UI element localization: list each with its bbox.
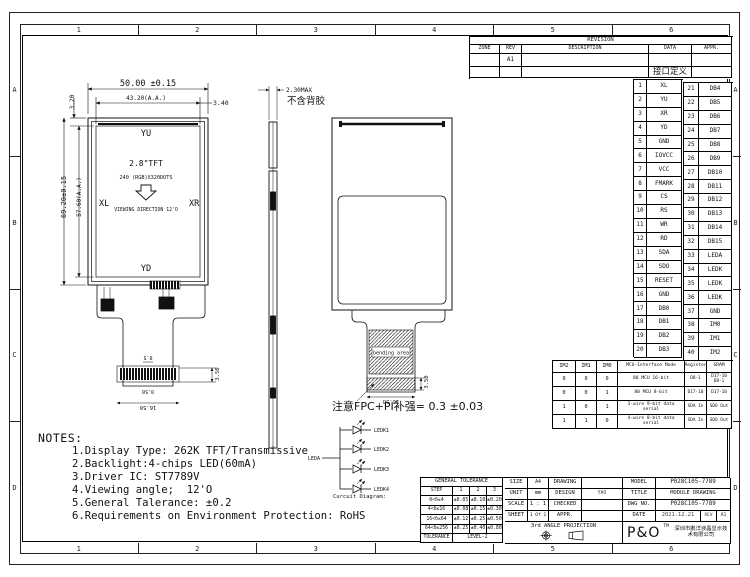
dim-thickness: 2.30MAX bbox=[286, 87, 312, 94]
unit-label: UNIT bbox=[505, 489, 528, 500]
tolerance-col: 1 bbox=[453, 487, 470, 496]
notes-section: NOTES: 1.Display Type: 262K TFT/Transmis… bbox=[38, 431, 365, 523]
note-item: 1.Display Type: 262K TFT/Transmissive bbox=[72, 445, 365, 458]
sheet-label: SHEET bbox=[505, 511, 528, 522]
tolerance-v2: ±0.40 bbox=[470, 525, 487, 535]
revision-col-data: DATA bbox=[649, 45, 692, 54]
dim-width: 50.00 ±0.15 bbox=[120, 79, 176, 89]
tolerance-v2: ±0.10 bbox=[470, 496, 487, 506]
mcu-mode: 4-wire 8-bit data serial bbox=[618, 415, 685, 429]
pin-name: DB7 bbox=[699, 125, 732, 139]
tolerance-v3: ±0.20 bbox=[487, 496, 503, 506]
pin-table-right: 21 DB4 22 DB5 23 DB6 24 DB7 25 DB8 26 DB… bbox=[683, 82, 733, 360]
logo-tm: TM bbox=[663, 525, 668, 530]
design-label: DESIGN bbox=[549, 489, 582, 500]
resolution-text: 240 (RGB)X320DOTS bbox=[119, 175, 172, 181]
mcu-im1: 0 bbox=[576, 387, 597, 401]
pin-name: IM2 bbox=[699, 347, 732, 361]
mcu-im2: 1 bbox=[553, 415, 576, 429]
mcu-gram: D17-10 D8-1 bbox=[707, 373, 732, 387]
mcu-register: D17-10 bbox=[685, 387, 707, 401]
pin-name: DB1 bbox=[647, 316, 682, 330]
tolerance-v3: ±0.80 bbox=[487, 525, 503, 535]
pin-table-left: 1 XL 2 YU 3 XR 4 YD 5 GND 6 IOVCC 7 VCC … bbox=[633, 79, 683, 357]
pin-number: 26 bbox=[684, 152, 699, 166]
pin-name: DB9 bbox=[699, 152, 732, 166]
mcu-im0: 0 bbox=[597, 373, 618, 387]
pin-name: YD bbox=[647, 122, 682, 136]
scale-label: SCALE bbox=[505, 500, 528, 511]
pin-name: YU bbox=[647, 94, 682, 108]
pin-name: XR bbox=[647, 108, 682, 122]
note-item: 2.Backlight:4-chips LED(60mA) bbox=[72, 458, 365, 471]
company-logo: P&O TM 深圳市鹏洋液晶显示技术有限公司 bbox=[623, 522, 731, 544]
revision-data-value: 接口定义 bbox=[649, 67, 692, 78]
label-yu: YU bbox=[141, 129, 151, 139]
title-value: MODULE DRAWING bbox=[656, 489, 731, 500]
mcu-im0: 0 bbox=[597, 415, 618, 429]
mcu-header: IM0 bbox=[597, 361, 618, 373]
dim-aa-height: 57.60(A.A.) bbox=[76, 177, 83, 217]
date-label: DATE bbox=[623, 511, 656, 522]
pin-name: GND bbox=[699, 305, 732, 319]
fpc-width-dim: 16.50 bbox=[140, 404, 157, 410]
tolerance-v1: ±0.08 bbox=[453, 506, 470, 516]
pin-name: LEDK bbox=[699, 264, 732, 278]
mcu-im0: 1 bbox=[597, 401, 618, 415]
logo-text: P&O bbox=[627, 526, 660, 540]
scale-value: 1 : 1 bbox=[528, 500, 549, 511]
size-label: SIZE bbox=[505, 478, 528, 489]
back-stiffener-outline bbox=[338, 196, 446, 304]
led-cathode-label: LEDK4 bbox=[374, 487, 389, 493]
pin-name: LEDK bbox=[699, 277, 732, 291]
pin-number: 33 bbox=[684, 250, 699, 264]
pin-number: 22 bbox=[684, 97, 699, 111]
fpc-gold-fingers bbox=[119, 368, 177, 380]
bending-area-label: bending area bbox=[373, 351, 409, 357]
pin-number: 17 bbox=[634, 302, 647, 316]
revision-title: REVISION bbox=[470, 37, 732, 45]
pin-name: XL bbox=[647, 80, 682, 94]
pin-number: 30 bbox=[684, 208, 699, 222]
rev-label: REV bbox=[701, 511, 717, 522]
pin-name: IM0 bbox=[699, 319, 732, 333]
pin-name: DB12 bbox=[699, 194, 732, 208]
pin-number: 34 bbox=[684, 264, 699, 278]
pin-name: DB6 bbox=[699, 111, 732, 125]
pin-name: RD bbox=[647, 233, 682, 247]
pin-name: GND bbox=[647, 288, 682, 302]
pin-name: DB8 bbox=[699, 139, 732, 153]
dwgno-label: DWG NO. bbox=[623, 500, 656, 511]
pin-name: DB3 bbox=[647, 344, 682, 358]
revision-col-description: DESCRIPTION bbox=[522, 45, 649, 54]
pin-name: DB13 bbox=[699, 208, 732, 222]
pin-number: 10 bbox=[634, 205, 647, 219]
tolerance-col: 3 bbox=[487, 487, 503, 496]
mcu-im1: 1 bbox=[576, 415, 597, 429]
tolerance-step: 0<δ≤4 bbox=[421, 496, 453, 506]
tolerance-v3: ±0.30 bbox=[487, 506, 503, 516]
dim-top-margin: 3.20 bbox=[69, 94, 76, 109]
side-note-cjk: 不含背胶 bbox=[287, 95, 326, 107]
pin-name: FMARK bbox=[647, 177, 682, 191]
mcu-register: SDA In bbox=[685, 401, 707, 415]
pin-number: 5 bbox=[634, 136, 647, 150]
projection-label: 3rd ANGLE PROJECTION bbox=[531, 524, 596, 529]
mcu-interface-table: IM2 IM1 IM0 MCU-Interface Mode Register … bbox=[552, 360, 733, 429]
tolerance-v2: ±0.25 bbox=[470, 515, 487, 525]
lcd-contact-strip bbox=[150, 281, 180, 289]
pin-number: 6 bbox=[634, 149, 647, 163]
mcu-im2: 0 bbox=[553, 373, 576, 387]
pin-name: DB15 bbox=[699, 236, 732, 250]
appr-value bbox=[582, 511, 623, 522]
front-fpc: 0.5 0.50 16.50 3.50 bbox=[97, 281, 221, 410]
tolerance-header: GENERAL TOLERANCE bbox=[421, 478, 503, 487]
pin-name: LEDA bbox=[699, 250, 732, 264]
label-xr: XR bbox=[189, 199, 200, 209]
pin-number: 25 bbox=[684, 139, 699, 153]
fpc-pitch2-dim: 0.50 bbox=[142, 388, 154, 394]
mcu-register: SDA In bbox=[685, 415, 707, 429]
tolerance-col: 2 bbox=[470, 487, 487, 496]
pin-name: WR bbox=[647, 219, 682, 233]
mcu-im1: 0 bbox=[576, 373, 597, 387]
fpc-height-dim: 3.50 bbox=[215, 367, 221, 380]
appr-label: APPR. bbox=[549, 511, 582, 522]
note-item: 3.Driver IC: ST7789V bbox=[72, 471, 365, 484]
pin-number: 12 bbox=[634, 233, 647, 247]
rev-value: A1 bbox=[717, 511, 731, 522]
back-height-dim: 3.50 bbox=[424, 375, 430, 388]
side-view: 2.30MAX 不含背胶 bbox=[258, 86, 326, 448]
pin-name: DB11 bbox=[699, 180, 732, 194]
dim-height: 69.20±0.15 bbox=[60, 176, 68, 218]
title-label: TITLE bbox=[623, 489, 656, 500]
tolerance-v2: ±0.15 bbox=[470, 506, 487, 516]
pin-name: VCC bbox=[647, 163, 682, 177]
pin-name: IOVCC bbox=[647, 149, 682, 163]
company-name: 深圳市鹏洋液晶显示技术有限公司 bbox=[672, 527, 730, 538]
pin-number: 23 bbox=[684, 111, 699, 125]
pin-number: 19 bbox=[634, 330, 647, 344]
tolerance-v1: ±0.12 bbox=[453, 515, 470, 525]
revision-rev-value: A1 bbox=[500, 54, 522, 67]
led-cathode-label: LEDK3 bbox=[374, 467, 389, 473]
pin-name: DB14 bbox=[699, 222, 732, 236]
side-component bbox=[271, 388, 276, 398]
revision-col-rev: REV bbox=[500, 45, 522, 54]
title-block: GENERAL TOLERANCE STEP 1 2 3 0<δ≤4 ±0.05… bbox=[420, 477, 730, 543]
mcu-mode: 80 MCU 16-bit bbox=[618, 373, 685, 387]
fpc-stiffener-note: 注意FPC+PI补强= 0.3 ±0.03 bbox=[332, 398, 483, 414]
pin-name: CS bbox=[647, 191, 682, 205]
pin-number: 14 bbox=[634, 261, 647, 275]
mcu-im0: 1 bbox=[597, 387, 618, 401]
pin-number: 28 bbox=[684, 180, 699, 194]
pin-number: 13 bbox=[634, 247, 647, 261]
mcu-header: IM1 bbox=[576, 361, 597, 373]
pin-number: 16 bbox=[634, 288, 647, 302]
unit-value: mm bbox=[528, 489, 549, 500]
label-yd: YD bbox=[141, 264, 151, 274]
pin-name: SDA bbox=[647, 247, 682, 261]
side-component bbox=[271, 316, 276, 334]
note-item: 5.General Talerance: ±0.2 bbox=[72, 497, 365, 510]
fpc-component bbox=[101, 299, 114, 311]
tolerance-v1: ±0.25 bbox=[453, 525, 470, 535]
tolerance-step: 64<δ≤256 bbox=[421, 525, 453, 535]
dim-aa-width: 43.20(A.A.) bbox=[126, 95, 166, 102]
pin-name: SDO bbox=[647, 261, 682, 275]
revision-col-zone: ZONE bbox=[470, 45, 500, 54]
side-component bbox=[271, 192, 276, 210]
tolerance-step: 4<δ≤16 bbox=[421, 506, 453, 516]
tolerance-step: 16<δ≤64 bbox=[421, 515, 453, 525]
back-view: bending area 16.50 3.50 bbox=[332, 118, 452, 404]
mcu-im2: 1 bbox=[553, 401, 576, 415]
pin-name: DB4 bbox=[699, 83, 732, 97]
pin-number: 40 bbox=[684, 347, 699, 361]
projection-cell: 3rd ANGLE PROJECTION bbox=[505, 522, 623, 544]
mcu-register: D8-1 bbox=[685, 373, 707, 387]
pin-number: 11 bbox=[634, 219, 647, 233]
pin-number: 15 bbox=[634, 274, 647, 288]
pin-number: 9 bbox=[634, 191, 647, 205]
pin-name: RESET bbox=[647, 274, 682, 288]
pin-number: 4 bbox=[634, 122, 647, 136]
viewing-direction-text: VIEWING DIRECTION 12'O bbox=[114, 207, 178, 213]
pin-name: DB0 bbox=[647, 302, 682, 316]
revision-table: REVISION ZONE REV DESCRIPTION DATA APPR.… bbox=[469, 36, 733, 79]
led-cathode-label: LEDK2 bbox=[374, 447, 389, 453]
pin-number: 38 bbox=[684, 319, 699, 333]
general-tolerance-table: GENERAL TOLERANCE STEP 1 2 3 0<δ≤4 ±0.05… bbox=[421, 478, 505, 544]
mcu-header: Register bbox=[685, 361, 707, 373]
mcu-header: IM2 bbox=[553, 361, 576, 373]
fpc-component bbox=[159, 297, 174, 309]
pin-name: DB5 bbox=[699, 97, 732, 111]
pin-number: 31 bbox=[684, 222, 699, 236]
label-xl: XL bbox=[99, 199, 109, 209]
checked-label: CHECKED bbox=[549, 500, 582, 511]
pin-number: 8 bbox=[634, 177, 647, 191]
mcu-mode: 3-wire 9-bit data serial bbox=[618, 401, 685, 415]
dim-right-margin: 3.40 bbox=[213, 99, 229, 107]
mcu-header: MCU-Interface Mode bbox=[618, 361, 685, 373]
mcu-gram: SDO Out bbox=[707, 415, 732, 429]
pin-number: 37 bbox=[684, 305, 699, 319]
pin-name: DB2 bbox=[647, 330, 682, 344]
size-value: A4 bbox=[528, 478, 549, 489]
tolerance-v3: ±0.50 bbox=[487, 515, 503, 525]
tolerance-col: STEP bbox=[421, 487, 453, 496]
pin-number: 36 bbox=[684, 291, 699, 305]
mcu-header: GRAM bbox=[707, 361, 732, 373]
pin-name: IM1 bbox=[699, 333, 732, 347]
fpc-pitch-dim: 0.5 bbox=[143, 354, 152, 360]
note-item: 6.Requirements on Environment Protection… bbox=[72, 510, 365, 523]
drawing-value bbox=[582, 478, 623, 489]
revision-col-appr: APPR. bbox=[692, 45, 732, 54]
pin-number: 39 bbox=[684, 333, 699, 347]
drawing-label: DRAWING bbox=[549, 478, 582, 489]
tolerance-v1: ±0.05 bbox=[453, 496, 470, 506]
pin-number: 24 bbox=[684, 125, 699, 139]
viewing-direction-arrow-icon bbox=[136, 185, 156, 200]
model-value: P028C105-7789 bbox=[656, 478, 731, 489]
pin-number: 2 bbox=[634, 94, 647, 108]
panel-size-text: 2.8"TFT bbox=[129, 159, 163, 168]
back-connector bbox=[367, 378, 415, 390]
pin-number: 32 bbox=[684, 236, 699, 250]
mcu-im1: 0 bbox=[576, 401, 597, 415]
pin-name: GND bbox=[647, 136, 682, 150]
sheet-value: 1 Of 1 bbox=[528, 511, 549, 522]
model-label: MODEL bbox=[623, 478, 656, 489]
mcu-mode: 80 MCU 8-bit bbox=[618, 387, 685, 401]
mcu-gram: D17-10 bbox=[707, 387, 732, 401]
pin-number: 27 bbox=[684, 166, 699, 180]
notes-title: NOTES: bbox=[38, 431, 365, 445]
front-view: 50.00 ±0.15 43.20(A.A.) 3.40 3.20 69.20±… bbox=[60, 79, 229, 410]
pin-number: 1 bbox=[634, 80, 647, 94]
pin-number: 3 bbox=[634, 108, 647, 122]
note-item: 4.Viewing angle; 12'O bbox=[72, 484, 365, 497]
design-value: YAO bbox=[582, 489, 623, 500]
mcu-im2: 0 bbox=[553, 387, 576, 401]
tolerance-footer-label: TOLERANCE bbox=[421, 534, 453, 543]
pin-name: DB10 bbox=[699, 166, 732, 180]
pin-name: LEDK bbox=[699, 291, 732, 305]
pin-name: RS bbox=[647, 205, 682, 219]
led-cathode-label: LEDK1 bbox=[374, 428, 389, 434]
pin-number: 35 bbox=[684, 277, 699, 291]
third-angle-projection-icon bbox=[537, 530, 591, 541]
dwgno-value: P028C105-7789 bbox=[656, 500, 731, 511]
pin-number: 21 bbox=[684, 83, 699, 97]
pin-number: 29 bbox=[684, 194, 699, 208]
pin-number: 7 bbox=[634, 163, 647, 177]
date-value: 2021.12.21 bbox=[656, 511, 701, 522]
pin-number: 20 bbox=[634, 344, 647, 358]
pin-number: 18 bbox=[634, 316, 647, 330]
tolerance-footer-value: LEVEL-2 bbox=[453, 534, 503, 543]
mcu-gram: SDO Out bbox=[707, 401, 732, 415]
checked-value bbox=[582, 500, 623, 511]
